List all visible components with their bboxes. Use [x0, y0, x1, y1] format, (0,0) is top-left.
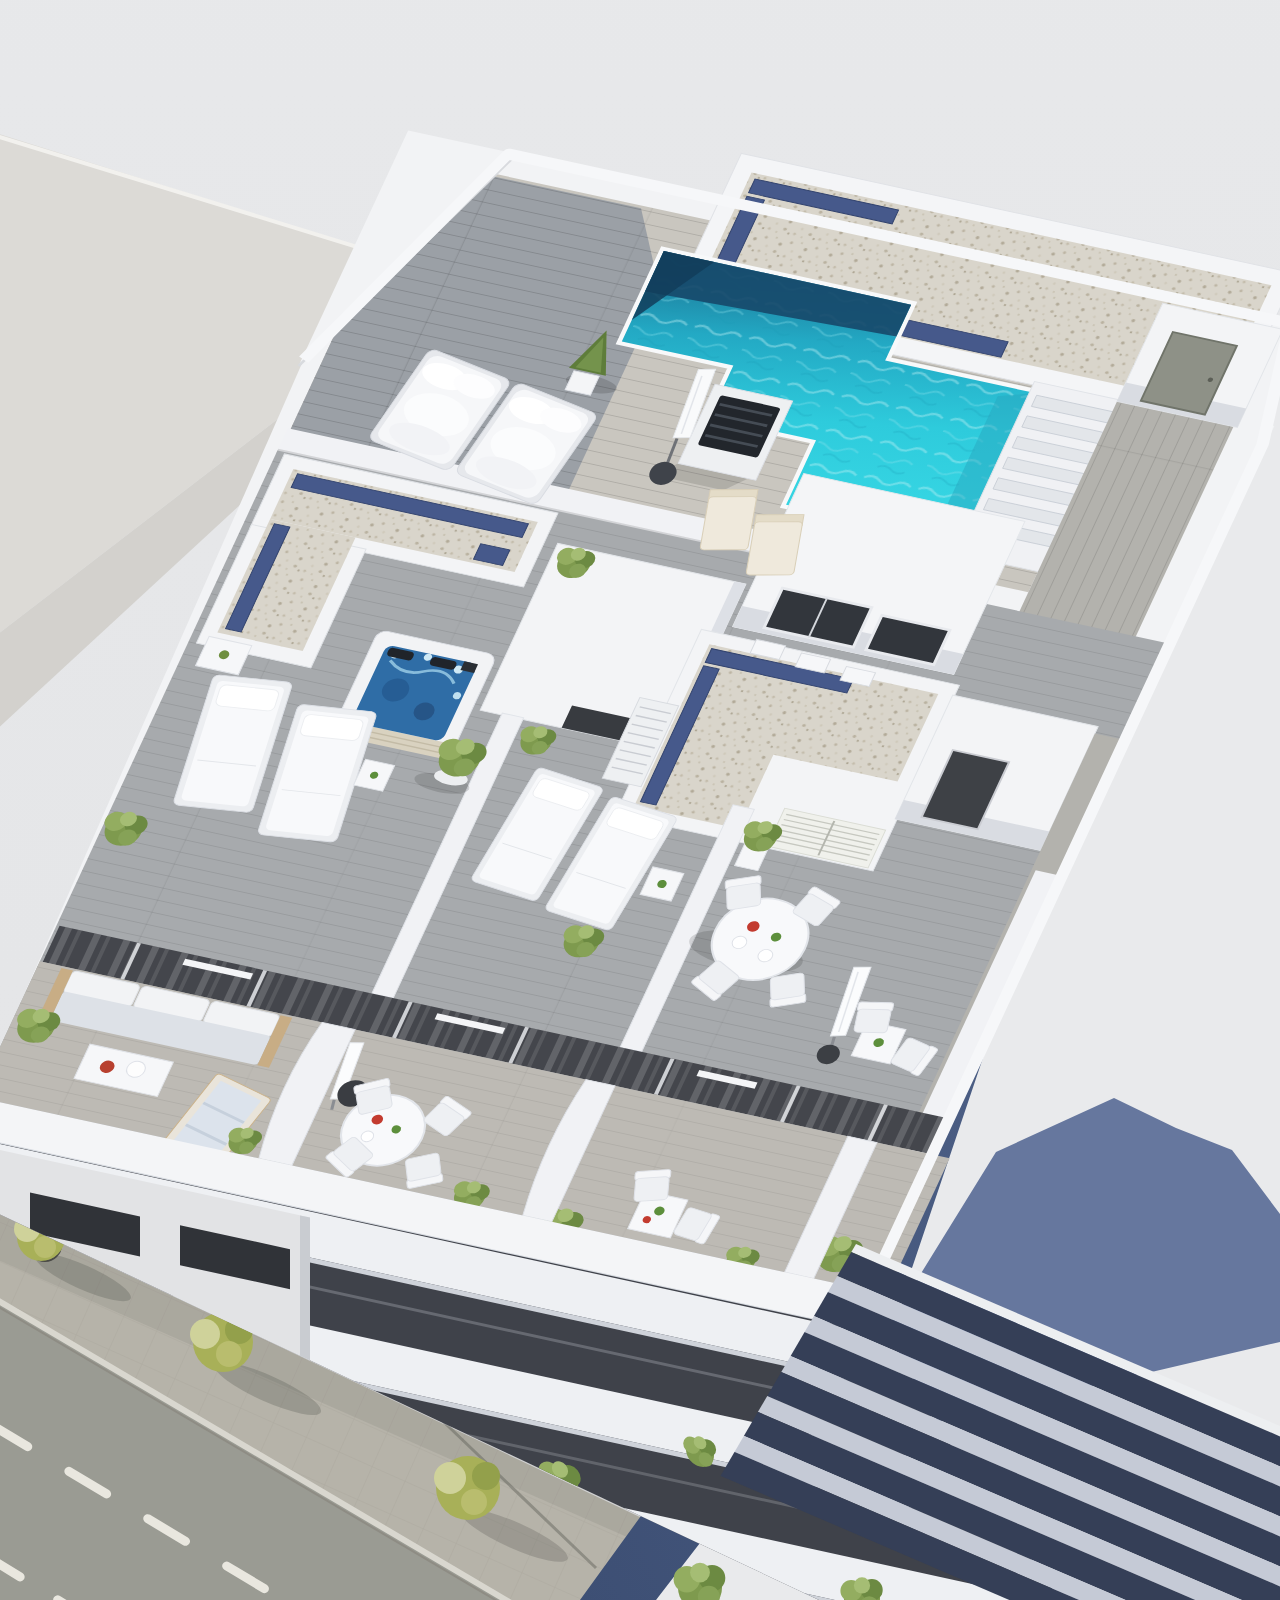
folding-deck-chair — [746, 515, 804, 575]
dining-chair — [852, 1002, 894, 1033]
folding-deck-chair — [700, 490, 758, 550]
render-stage — [0, 0, 1280, 1600]
base-shrub — [674, 1563, 726, 1600]
dining-chair — [725, 875, 762, 910]
dining-chair — [769, 972, 806, 1007]
balcony-chair — [633, 1169, 671, 1201]
